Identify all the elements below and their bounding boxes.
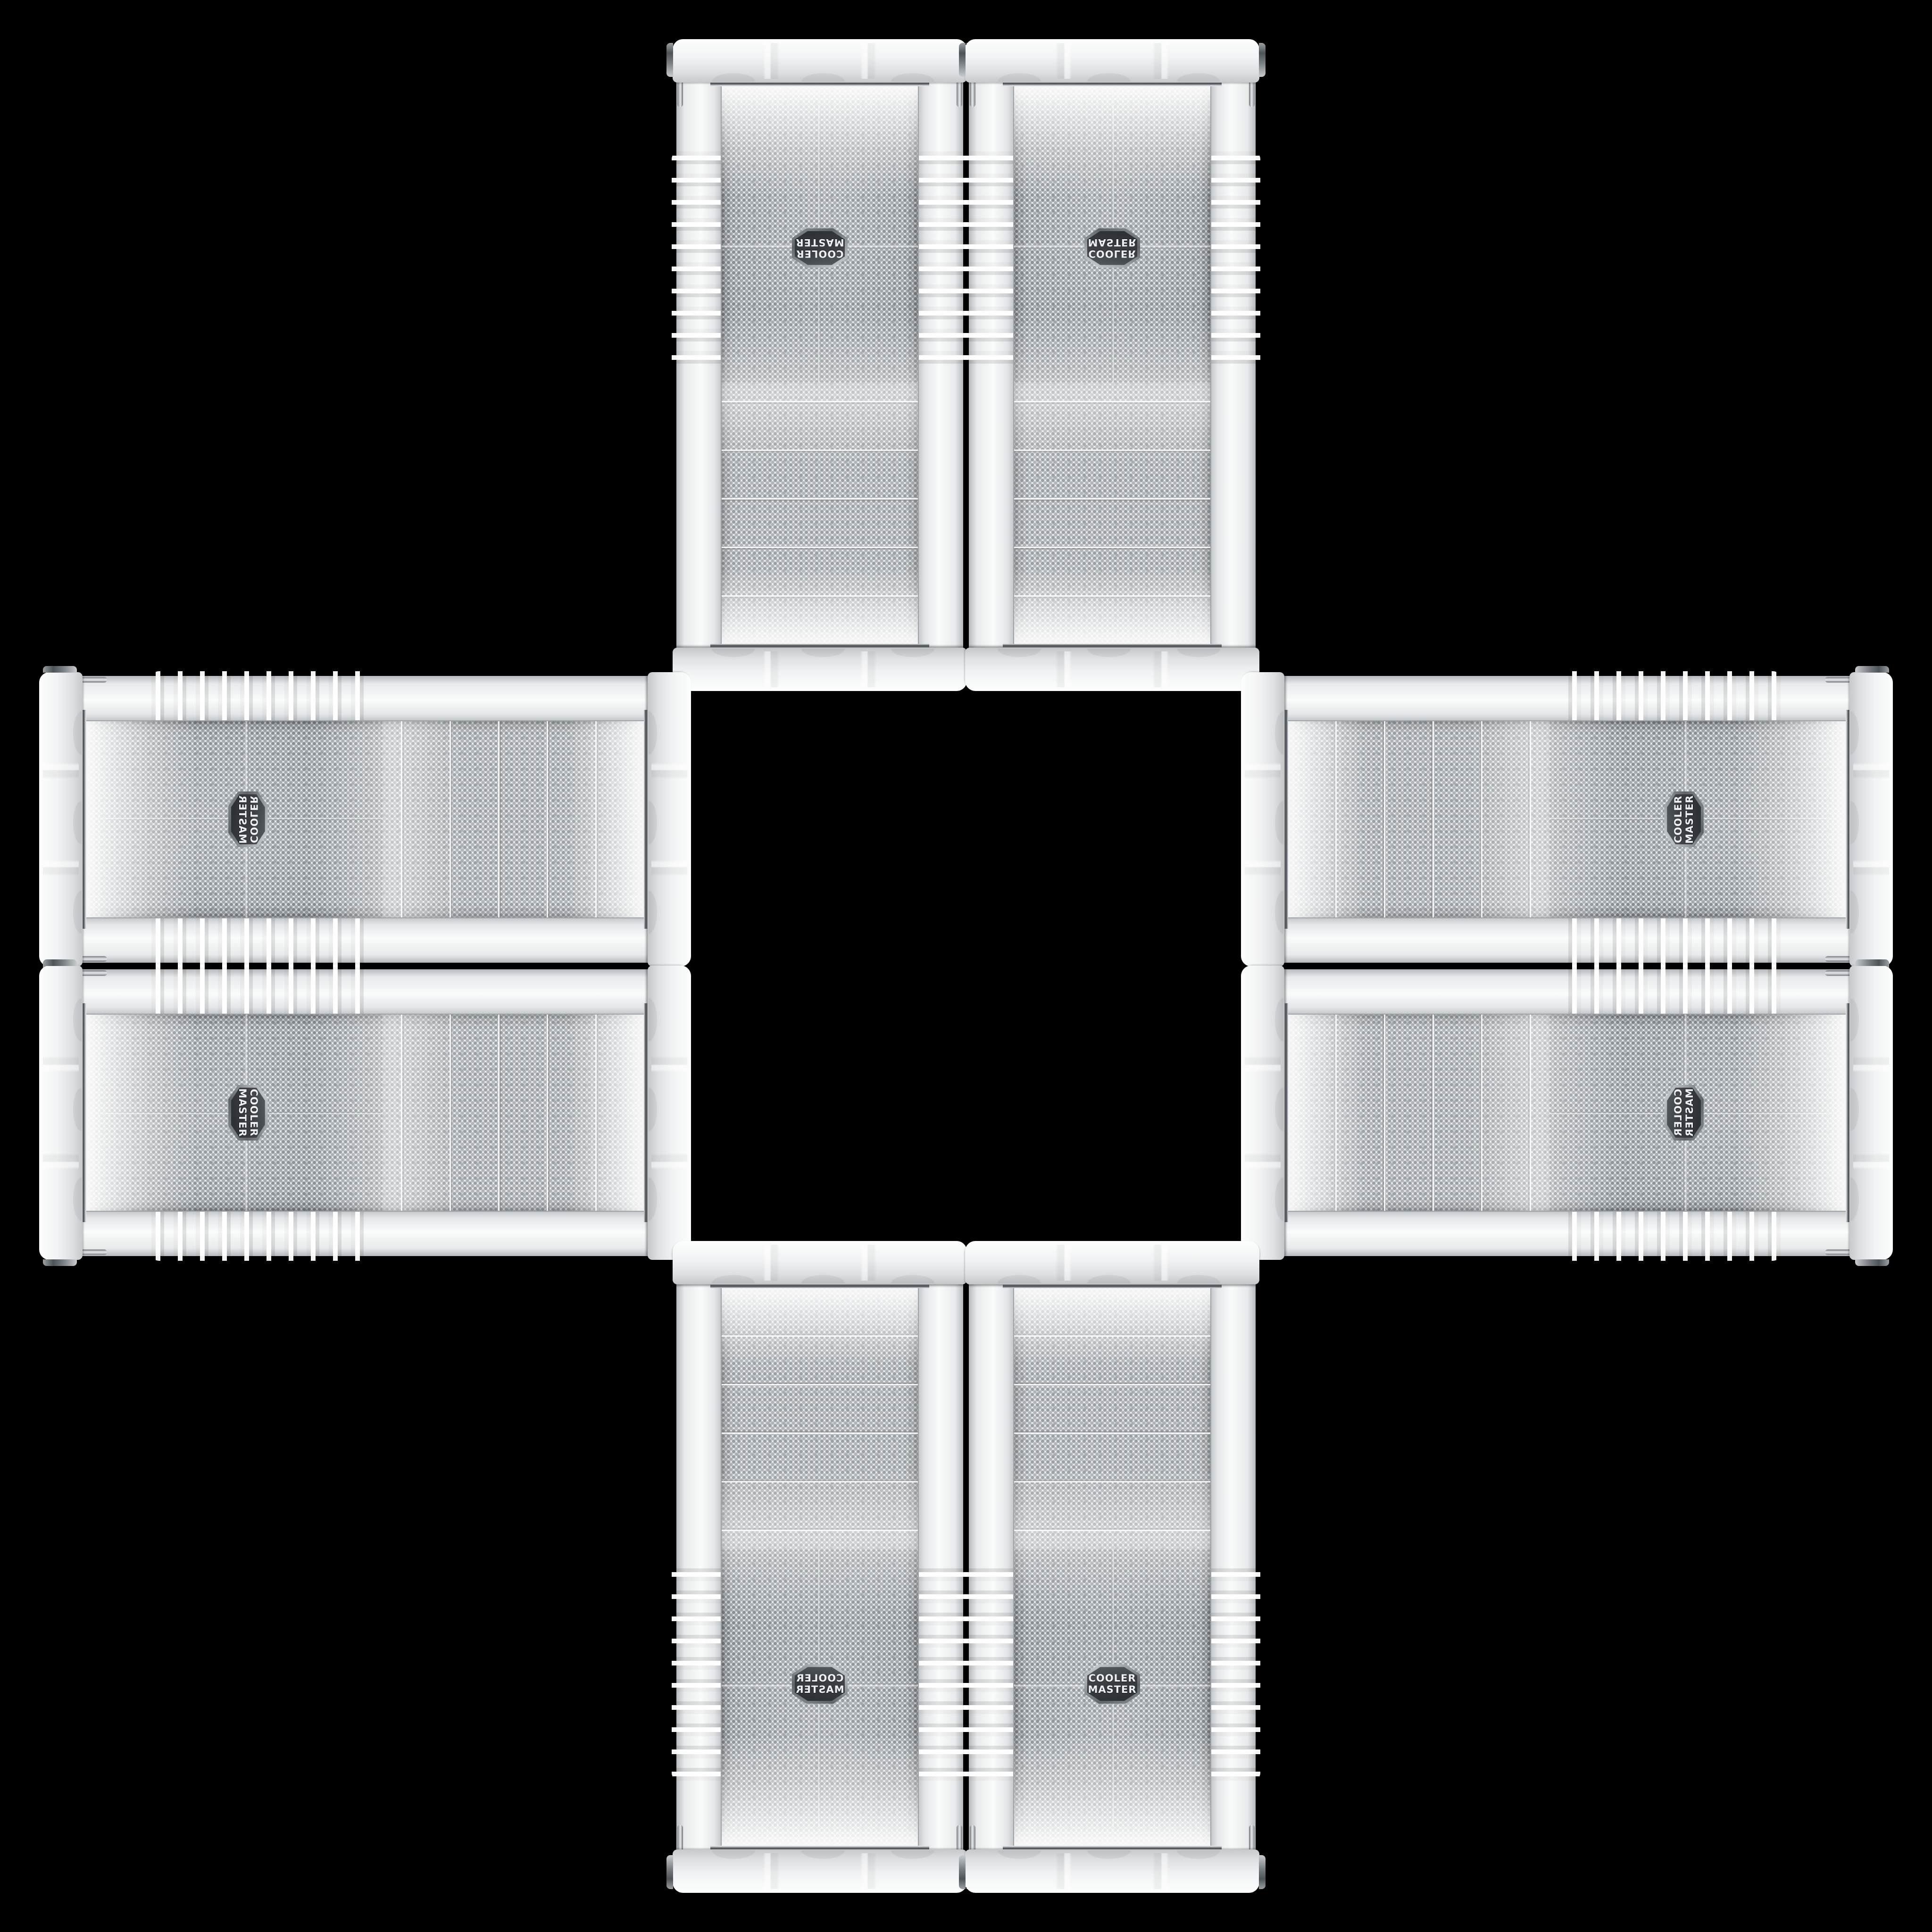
grip-ribs bbox=[151, 965, 373, 1014]
drive-bay-covers bbox=[382, 1015, 644, 1211]
badge-text-master: MASTER bbox=[1684, 795, 1695, 843]
badge-text-master: MASTER bbox=[237, 795, 248, 843]
case-foot-right bbox=[1855, 666, 1889, 673]
pc-case: COOLER MASTER bbox=[969, 39, 1256, 691]
cooler-master-logo: COOLER MASTER bbox=[1087, 1667, 1137, 1701]
side-rail-right bbox=[1211, 69, 1256, 661]
grip-ribs bbox=[151, 918, 373, 967]
cooler-master-logo: COOLER MASTER bbox=[795, 1667, 845, 1701]
badge-text-cooler: COOLER bbox=[248, 796, 259, 843]
case-bottom-cap bbox=[673, 1849, 967, 1893]
case-top-cap bbox=[1241, 966, 1284, 1260]
case-bottom-cap bbox=[965, 1849, 1259, 1893]
grip-ribs bbox=[672, 1559, 721, 1781]
case-foot-right bbox=[1259, 43, 1266, 77]
case-foot-right bbox=[1259, 1855, 1266, 1889]
case-foot-right bbox=[666, 1855, 673, 1889]
pc-case-right-top: COOLER MASTER bbox=[1241, 676, 1893, 963]
case-foot-right bbox=[43, 666, 77, 673]
pc-case-bottom-right: COOLER MASTER bbox=[969, 1241, 1256, 1893]
side-rail-left bbox=[1271, 918, 1863, 963]
cooler-master-logo: COOLER MASTER bbox=[1667, 1088, 1701, 1138]
drive-bay-covers bbox=[1288, 1015, 1550, 1211]
pc-case-bottom-left: COOLER MASTER bbox=[676, 1241, 963, 1893]
case-top-cap bbox=[648, 966, 691, 1260]
side-rail-left bbox=[969, 69, 1013, 661]
cooler-master-badge: COOLER MASTER bbox=[1084, 1664, 1140, 1704]
side-rail-left bbox=[969, 1271, 1013, 1863]
case-bottom-cap bbox=[39, 672, 83, 966]
badge-text-cooler: COOLER bbox=[1673, 1089, 1684, 1136]
cooler-master-logo: COOLER MASTER bbox=[795, 231, 845, 265]
case-top-cap bbox=[965, 648, 1259, 691]
grip-ribs bbox=[1559, 918, 1781, 967]
side-rail-left bbox=[919, 1271, 963, 1863]
pc-case-top-left: COOLER MASTER bbox=[676, 39, 963, 691]
side-rail-right bbox=[69, 676, 661, 720]
badge-text-cooler: COOLER bbox=[796, 248, 844, 259]
case-foot-left bbox=[959, 43, 966, 77]
pc-case: COOLER MASTER bbox=[676, 39, 963, 691]
case-bottom-cap bbox=[39, 966, 83, 1260]
drive-bay-covers bbox=[1014, 1288, 1210, 1550]
grip-ribs bbox=[151, 1212, 373, 1261]
side-rail-right bbox=[1211, 1271, 1256, 1863]
side-rail-right bbox=[69, 1212, 661, 1256]
grip-ribs bbox=[1211, 151, 1260, 373]
badge-text-cooler: COOLER bbox=[796, 1673, 844, 1684]
badge-text-cooler: COOLER bbox=[1088, 248, 1136, 259]
side-rail-right bbox=[676, 69, 721, 661]
case-top-cap bbox=[648, 672, 691, 966]
side-rail-left bbox=[69, 918, 661, 963]
pc-case: COOLER MASTER bbox=[39, 676, 691, 963]
front-mesh-panel: COOLER MASTER bbox=[1288, 1014, 1846, 1212]
case-bottom-cap bbox=[673, 39, 967, 83]
grip-ribs bbox=[672, 151, 721, 373]
cooler-master-badge: COOLER MASTER bbox=[1664, 1085, 1704, 1141]
case-top-cap bbox=[965, 1241, 1259, 1284]
case-top-cap bbox=[673, 1241, 967, 1284]
side-rail-left bbox=[69, 969, 661, 1014]
badge-text-master: MASTER bbox=[1684, 1088, 1695, 1137]
front-mesh-panel: COOLER MASTER bbox=[721, 1288, 919, 1846]
pc-case: COOLER MASTER bbox=[1241, 676, 1893, 963]
cooler-master-badge: COOLER MASTER bbox=[1664, 791, 1704, 847]
side-rail-right bbox=[676, 1271, 721, 1863]
cooler-master-badge: COOLER MASTER bbox=[228, 1085, 268, 1141]
grip-ribs bbox=[919, 151, 968, 373]
front-mesh-panel: COOLER MASTER bbox=[1288, 720, 1846, 918]
pc-case-left-bottom: COOLER MASTER bbox=[39, 969, 691, 1256]
case-foot-right bbox=[43, 1259, 77, 1266]
badge-text-master: MASTER bbox=[237, 1088, 248, 1137]
grip-ribs bbox=[919, 1559, 968, 1781]
pc-case: COOLER MASTER bbox=[969, 1241, 1256, 1893]
badge-text-master: MASTER bbox=[795, 237, 844, 248]
case-bottom-cap bbox=[965, 39, 1259, 83]
side-rail-left bbox=[1271, 969, 1863, 1014]
pc-case: COOLER MASTER bbox=[676, 1241, 963, 1893]
collage-canvas: COOLER MASTER bbox=[0, 0, 1932, 1932]
badge-text-cooler: COOLER bbox=[1673, 796, 1684, 843]
grip-ribs bbox=[1559, 1212, 1781, 1261]
drive-bay-covers bbox=[722, 382, 918, 644]
front-mesh-panel: COOLER MASTER bbox=[721, 86, 919, 644]
cooler-master-logo: COOLER MASTER bbox=[1087, 231, 1137, 265]
badge-text-master: MASTER bbox=[795, 1684, 844, 1695]
drive-bay-covers bbox=[722, 1288, 918, 1550]
pc-case-right-bottom: COOLER MASTER bbox=[1241, 969, 1893, 1256]
front-mesh-panel: COOLER MASTER bbox=[86, 1014, 644, 1212]
drive-bay-covers bbox=[1014, 382, 1210, 644]
front-mesh-panel: COOLER MASTER bbox=[86, 720, 644, 918]
side-rail-right bbox=[1271, 1212, 1863, 1256]
case-top-cap bbox=[1241, 672, 1284, 966]
front-mesh-panel: COOLER MASTER bbox=[1013, 1288, 1211, 1846]
badge-text-master: MASTER bbox=[1088, 237, 1136, 248]
cooler-master-logo: COOLER MASTER bbox=[231, 1088, 265, 1138]
grip-ribs bbox=[1559, 965, 1781, 1014]
grip-ribs bbox=[151, 671, 373, 720]
cooler-master-logo: COOLER MASTER bbox=[1667, 794, 1701, 844]
case-foot-left bbox=[959, 1855, 966, 1889]
grip-ribs bbox=[964, 151, 1013, 373]
grip-ribs bbox=[1559, 671, 1781, 720]
side-rail-right bbox=[1271, 676, 1863, 720]
badge-text-master: MASTER bbox=[1088, 1684, 1136, 1695]
cooler-master-logo: COOLER MASTER bbox=[231, 794, 265, 844]
case-bottom-cap bbox=[1849, 672, 1893, 966]
drive-bay-covers bbox=[1288, 721, 1550, 917]
grip-ribs bbox=[1211, 1559, 1260, 1781]
pc-case: COOLER MASTER bbox=[39, 969, 691, 1256]
case-foot-left bbox=[43, 959, 77, 966]
case-bottom-cap bbox=[1849, 966, 1893, 1260]
drive-bay-covers bbox=[382, 721, 644, 917]
pc-case-left-top: COOLER MASTER bbox=[39, 676, 691, 963]
case-top-cap bbox=[673, 648, 967, 691]
front-mesh-panel: COOLER MASTER bbox=[1013, 86, 1211, 644]
cooler-master-badge: COOLER MASTER bbox=[1084, 228, 1140, 268]
cooler-master-badge: COOLER MASTER bbox=[792, 1664, 848, 1704]
side-rail-left bbox=[919, 69, 963, 661]
cooler-master-badge: COOLER MASTER bbox=[792, 228, 848, 268]
badge-text-cooler: COOLER bbox=[1088, 1673, 1136, 1684]
case-foot-right bbox=[1855, 1259, 1889, 1266]
cooler-master-badge: COOLER MASTER bbox=[228, 791, 268, 847]
case-foot-left bbox=[1855, 959, 1889, 966]
case-foot-right bbox=[666, 43, 673, 77]
grip-ribs bbox=[964, 1559, 1013, 1781]
pc-case-top-right: COOLER MASTER bbox=[969, 39, 1256, 691]
badge-text-cooler: COOLER bbox=[248, 1089, 259, 1136]
pc-case: COOLER MASTER bbox=[1241, 969, 1893, 1256]
